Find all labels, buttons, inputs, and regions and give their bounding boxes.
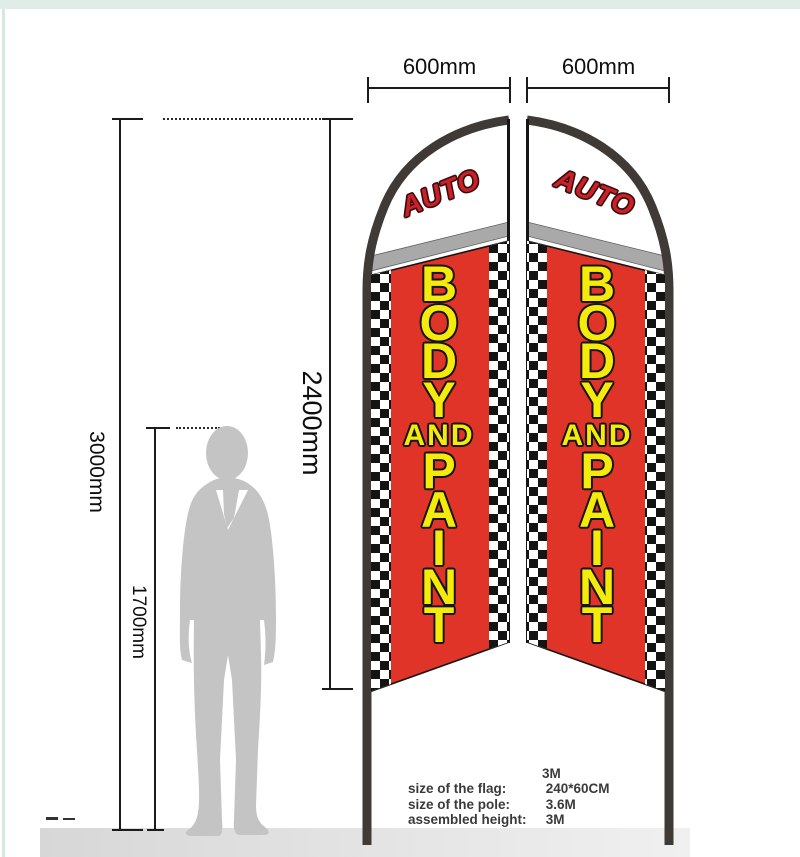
spec-row-pole-header: 3M xyxy=(408,766,688,781)
dimension-tick xyxy=(146,427,170,429)
spec-label: assembled height: xyxy=(408,812,542,827)
checkered-strip xyxy=(489,235,509,655)
flag-letter: Y xyxy=(394,381,484,420)
feather-flag-right: AUTO B O D Y AND P A I N T xyxy=(520,115,678,845)
dimension-label-1700mm: 1700mm xyxy=(127,574,149,670)
dimension-tick xyxy=(147,829,164,831)
dimension-label-2400mm: 2400mm xyxy=(301,358,327,488)
feather-flag-left: AUTO B O D Y AND P A I N T xyxy=(358,115,516,845)
dimension-tick xyxy=(112,118,143,120)
dimension-tick xyxy=(526,77,528,103)
floor-dash xyxy=(63,818,75,820)
dimension-tick xyxy=(322,118,353,120)
dimension-tick xyxy=(668,77,670,103)
spec-value: 3M xyxy=(542,766,561,781)
dimension-label-600mm-right: 600mm xyxy=(527,54,670,80)
spec-label: size of the flag: xyxy=(408,781,542,796)
flag-letter: T xyxy=(552,606,642,645)
spec-value: 3M xyxy=(546,812,565,827)
flag-letter: Y xyxy=(552,381,642,420)
spec-row-assembled-height: assembled height: 3M xyxy=(408,812,688,827)
dimension-tick xyxy=(322,688,353,690)
flag-spec-diagram: 3000mm 2400mm 1700mm 600mm 600mm AUTO B … xyxy=(0,0,800,857)
checkered-strip xyxy=(371,265,391,697)
dimension-line-600mm-right xyxy=(527,87,670,89)
spec-value: 240*60CM xyxy=(546,781,610,796)
spec-value: 3.6M xyxy=(546,797,576,812)
dimension-tick xyxy=(509,77,511,103)
dimension-line-600mm-left xyxy=(368,87,511,89)
dimension-tick xyxy=(112,829,143,831)
checkered-strip xyxy=(645,265,665,697)
dimension-line-1700mm xyxy=(154,428,156,831)
spec-row-flag-size: size of the flag: 240*60CM xyxy=(408,781,688,796)
body-and-paint-text: B O D Y AND P A I N T xyxy=(552,265,642,645)
spec-label: size of the pole: xyxy=(408,797,542,812)
dimension-line-2400mm xyxy=(329,119,331,690)
person-silhouette xyxy=(170,420,300,857)
dimension-label-3000mm: 3000mm xyxy=(84,420,108,524)
spec-row-pole-size: size of the pole: 3.6M xyxy=(408,797,688,812)
floor-dash xyxy=(46,817,58,820)
dimension-label-600mm-left: 600mm xyxy=(368,54,511,80)
checkered-strip xyxy=(527,235,547,655)
dimension-tick xyxy=(367,77,369,103)
frame-left-border xyxy=(2,9,5,857)
flag-letter: T xyxy=(394,606,484,645)
dimension-line-3000mm xyxy=(119,119,121,831)
frame-top-border xyxy=(0,0,800,9)
spec-text-block: 3M size of the flag: 240*60CM size of th… xyxy=(408,766,688,828)
body-and-paint-text: B O D Y AND P A I N T xyxy=(394,265,484,645)
